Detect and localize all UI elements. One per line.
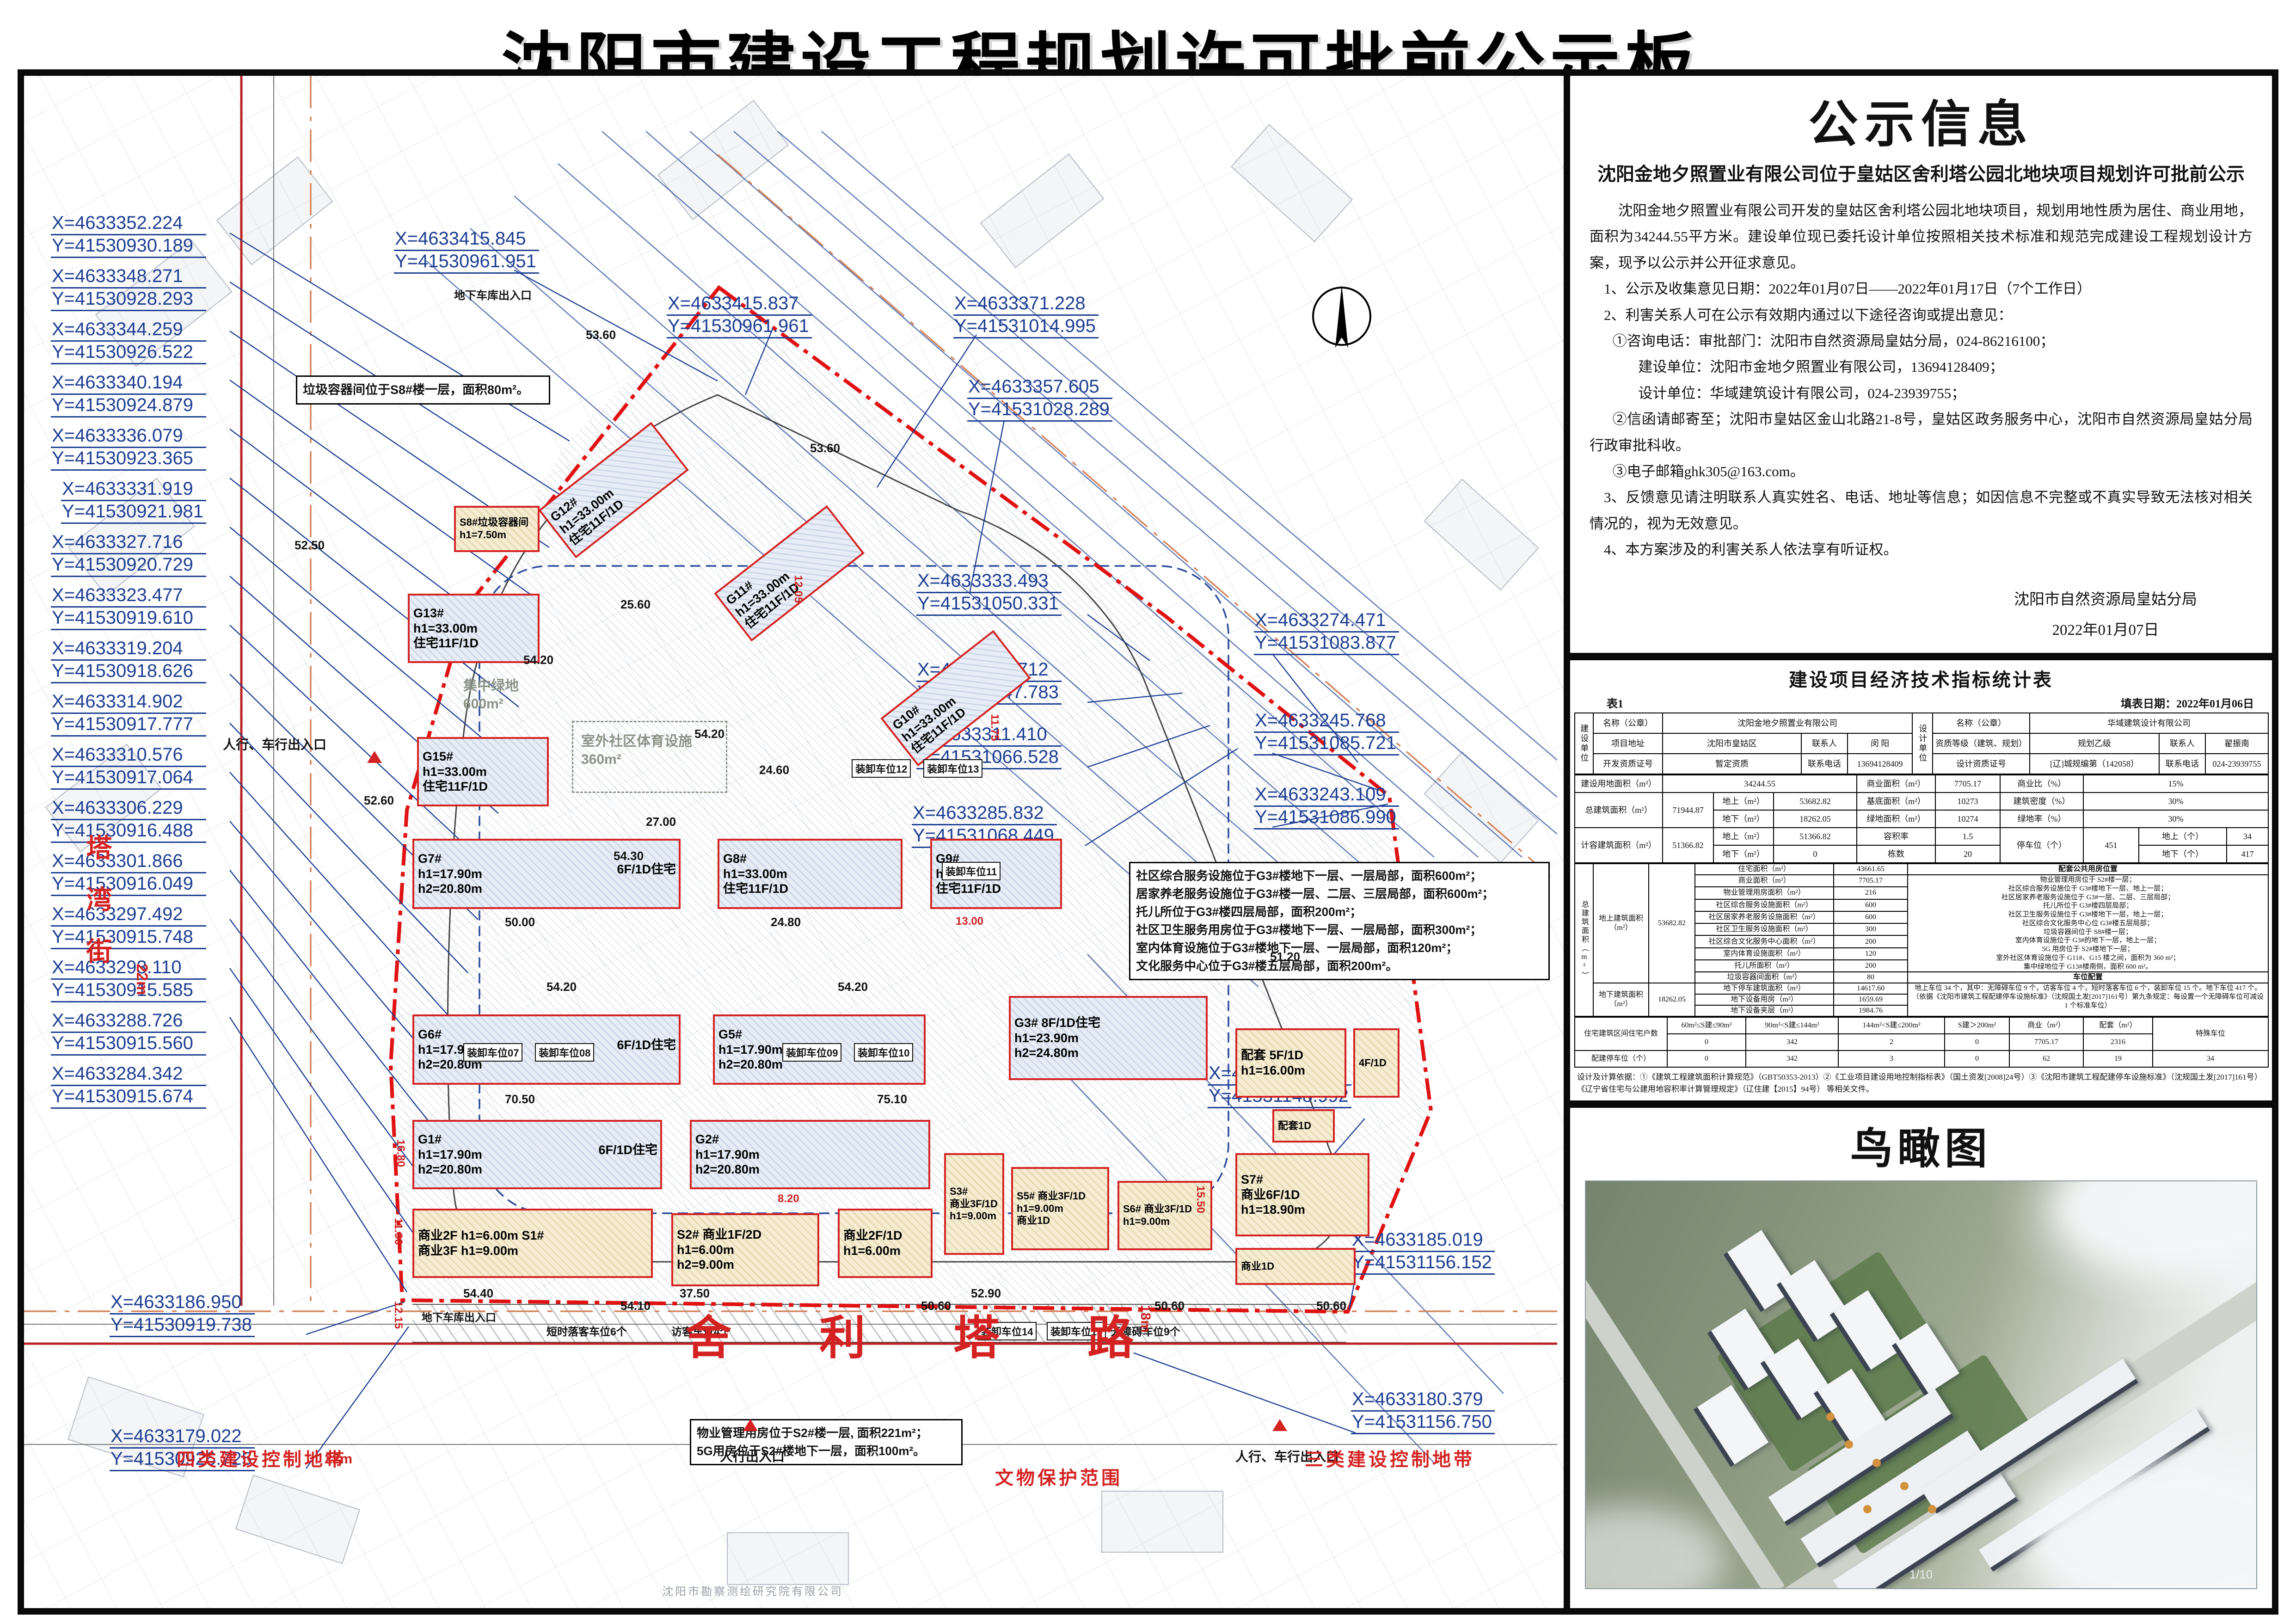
table-cell: 住宅面积（m²） <box>1695 864 1834 875</box>
render-cloud <box>2053 1180 2257 1274</box>
notice-paragraph: 3、反馈意见请注明联系人真实姓名、电话、地址等信息；如因信息不完整或不真实导致无… <box>1590 485 2253 537</box>
notice-paragraph: 沈阳金地夕照置业有限公司开发的皇姑区舍利塔公园北地块项目，规划用地性质为居住、商… <box>1590 198 2253 276</box>
table-cell: 资质等级（建筑、规划） <box>1933 733 2030 754</box>
coordinate-label: X=4633333.493Y=41531050.331 <box>916 571 1062 616</box>
table-cell: 342 <box>1746 1034 1838 1051</box>
coordinate-label: X=4633185.019Y=41531156.152 <box>1351 1229 1495 1275</box>
building-s5: S5# 商业3F/1Dh1=9.00m商业1D <box>1011 1167 1109 1250</box>
table-cell: 住宅建筑区间住宅户数 <box>1575 1017 1667 1051</box>
coordinate-label: X=4633357.605Y=41531028.289 <box>967 376 1112 422</box>
notice-paragraph: ③电子邮箱ghk305@163.com。 <box>1590 459 2253 485</box>
table-cell: 1.5 <box>1935 828 2000 845</box>
render-watermark: 1/10 <box>1909 1567 1933 1582</box>
garage-entrance-label: 地下车库出入口 <box>454 286 532 302</box>
table-cell: 暂定资质 <box>1663 754 1801 774</box>
dropoff-stall-label: 短时落客车位6个 <box>546 1323 627 1339</box>
table-cell: 200 <box>1834 960 1908 972</box>
unload-stall-label: 装卸车位10 <box>854 1043 913 1062</box>
table-cell: 社区卫生服务设施面积（m²） <box>1695 923 1834 935</box>
table-cell: S建＞200m² <box>1945 1017 2009 1034</box>
table-cell: 绿地率（%） <box>2000 810 2083 828</box>
spot-elevation: 52.50 <box>295 538 325 553</box>
entrance-label-south: 人行出入口 <box>720 1447 785 1465</box>
table-cell: 联系人 <box>2159 733 2205 754</box>
table-area-detail-block: 总建筑面积（m²） 地上建筑面积（m²） 53682.82 住宅面积（m²） 4… <box>1574 863 2269 1017</box>
coordinate-label: X=4633306.229Y=41530916.488 <box>51 798 206 843</box>
dimension-label: 16.80 <box>394 1139 407 1167</box>
dimension-label: 24.60 <box>759 763 789 777</box>
table-cell: 托儿所面积（m²） <box>1695 960 1834 972</box>
table-cell: 配套公共用房位置 <box>1908 864 2268 875</box>
spot-elevation: 54.20 <box>523 653 553 667</box>
building-s8-garbage: S8#垃圾容器间h1=7.50m <box>454 506 540 552</box>
surveyor-footnote: 沈阳市勘察测绘研究院有限公司 <box>662 1582 843 1598</box>
coordinate-label: X=4633331.919Y=41530921.981 <box>61 479 206 524</box>
notice-paragraph: 4、本方案涉及的利害关系人依法享有听证权。 <box>1590 537 2253 563</box>
table-cell: 15% <box>2083 775 2268 793</box>
notice-paragraph: 设计单位：华域建筑设计有限公司，024-23939755； <box>1590 381 2253 406</box>
dimension-label: 24.80 <box>771 915 801 929</box>
table-cell: 53682.82 <box>1774 793 1857 810</box>
table-cell: 34 <box>2153 1051 2268 1067</box>
spot-elevation: 53.60 <box>586 328 616 342</box>
table-cell: 7705.17 <box>1834 875 1908 887</box>
table-cell: 联系电话 <box>1801 754 1848 774</box>
table-cell: 144m²<S建≤200m² <box>1838 1017 1945 1034</box>
spot-elevation: 54.20 <box>694 727 724 741</box>
entrance-marker-icon <box>367 751 382 763</box>
table-cell: 基底面积（m²） <box>1857 793 1935 810</box>
table-cell: 配建停车位（个） <box>1575 1051 1667 1067</box>
table-cell: 30% <box>2083 810 2268 828</box>
table-cell: 项目地址 <box>1593 733 1663 754</box>
table-cell: 地上（m²） <box>1713 793 1774 810</box>
road-label-south: 舍利塔路 <box>685 1300 1222 1367</box>
table-cell: 建筑密度（%） <box>2000 793 2083 810</box>
table-cell: 19 <box>2083 1051 2153 1067</box>
table-cell: 216 <box>1834 887 1908 899</box>
dimension-label: 15.50 <box>1194 1186 1207 1213</box>
table-household-block: 住宅建筑区间住宅户数 60m²≤S建≤90m² 90m²<S建≤144m² 14… <box>1574 1017 2269 1068</box>
table-cell: 90m²<S建≤144m² <box>1746 1017 1838 1034</box>
signature-agency: 沈阳市自然资源局皇姑分局 <box>2014 584 2197 615</box>
table-cell: 华域建筑设计有限公司 <box>2030 713 2268 733</box>
coordinate-label: X=4633352.224Y=41530930.189 <box>51 213 206 258</box>
table-cell: 物业管理用房面积（m²） <box>1695 887 1834 899</box>
unload-stall-label: 装卸车位08 <box>535 1043 594 1062</box>
spot-elevation: 54.40 <box>463 1286 493 1301</box>
table-cell: 商业面积（m²） <box>1695 875 1834 887</box>
garage-entrance-label: 地下车库出入口 <box>422 1309 496 1324</box>
table-cell: 垃圾容器间面积（m²） <box>1695 972 1834 983</box>
table-cell: 联系人 <box>1801 733 1848 754</box>
render-cloud <box>1585 1505 1725 1589</box>
dimension-label: 11.90 <box>392 1218 405 1245</box>
unload-stall-label: 装卸车位13 <box>923 759 982 778</box>
table-cell: 地下（m²） <box>1713 845 1774 863</box>
spot-elevation: 50.60 <box>1316 1299 1346 1313</box>
indicator-table-section: 建设项目经济技术指标统计表 表1 填表日期：2022年01月06日 建设单位 名… <box>1570 660 2272 1100</box>
building-s1: 商业2F h1=6.00m S1#商业3F h1=9.00m <box>412 1209 653 1278</box>
zone-label: 三类建设控制地带 <box>1305 1444 1475 1471</box>
birdseye-section: 鸟瞰图 <box>1570 1114 2272 1615</box>
building-g8: G8#h1=33.00m住宅11F/1D <box>718 839 902 909</box>
table-cell: 43661.65 <box>1834 864 1908 875</box>
zone-label: 四类建设控制地带 <box>177 1444 347 1471</box>
coordinate-label: X=4633180.379Y=41531156.750 <box>1351 1389 1495 1434</box>
coordinate-label: X=4633327.716Y=41530920.729 <box>51 532 206 577</box>
table-cell: 13694128409 <box>1848 754 1912 774</box>
section-divider <box>1570 653 2272 660</box>
table-cell: 18262.05 <box>1649 983 1695 1016</box>
notice-paragraph: 1、公示及收集意见日期：2022年01月07日——2022年01月17日（7个工… <box>1590 276 2253 302</box>
table-footnote: 设计及计算依据：①《建筑工程建筑面积计算规范》（GBT50353-2013）②《… <box>1574 1071 2268 1095</box>
spot-elevation: 52.60 <box>364 793 394 808</box>
table-cell: 容积率 <box>1857 828 1935 845</box>
table-cell: 室内体育设施面积（m²） <box>1695 948 1834 960</box>
road-label-west: 塔湾街 <box>79 834 116 989</box>
table-cell: 71944.87 <box>1663 793 1713 828</box>
building-support-1d: 配套1D <box>1272 1109 1335 1143</box>
zone-label: 文物保护范围 <box>995 1463 1123 1490</box>
coordinate-label: X=4633288.726Y=41530915.560 <box>51 1010 206 1056</box>
table-header-block: 建设单位 名称（公章） 沈阳金地夕照置业有限公司 设计单位 名称（公章） 华域建… <box>1574 713 2269 774</box>
table-cell: 计容建筑面积（m²） <box>1575 828 1663 863</box>
unload-stall-label: 装卸车位12 <box>852 759 911 778</box>
table-cell: 名称（公章） <box>1593 713 1663 733</box>
dimension-label: 70.50 <box>505 1092 535 1106</box>
table-cell: 0 <box>1667 1034 1746 1051</box>
table-cell: 联系电话 <box>2159 754 2205 774</box>
coordinate-label: X=4633314.902Y=41530917.777 <box>51 691 206 737</box>
table-cell: 规划乙级 <box>2030 733 2159 754</box>
note-box-garbage: 垃圾容器间位于S8#楼一层，面积80m²。 <box>296 375 550 405</box>
table-cell: 60m²≤S建≤90m² <box>1667 1017 1746 1034</box>
table-cell: 地上（m²） <box>1713 828 1774 845</box>
table-cell: 地上车位 34 个，其中：无障碍车位 9 个，访客车位 4 个，短时落客车位 6… <box>1908 983 2268 1016</box>
spot-elevation: 37.50 <box>680 1286 710 1301</box>
coordinate-label: X=4633340.194Y=41530924.879 <box>51 372 206 418</box>
spot-elevation: 54.30 <box>614 849 644 863</box>
coordinate-label: X=4633245.768Y=41531085.721 <box>1254 710 1399 756</box>
table-cell: 地下设备用房（m²） <box>1695 994 1834 1005</box>
table-cell: 地下（个） <box>2139 845 2227 863</box>
notice-board-page: 沈阳市建设工程规划许可批前公示板 <box>0 0 2296 1622</box>
building-g2: G2#h1=17.90mh2=20.80m <box>690 1120 930 1189</box>
building-s2: S2# 商业1F/2Dh1=6.00mh2=9.00m <box>671 1213 819 1286</box>
table-cell: 沈阳市皇姑区 <box>1663 733 1801 754</box>
table-cell: 7705.17 <box>1935 775 2000 793</box>
dimension-label: 75.10 <box>877 1092 907 1106</box>
coordinate-label: X=4633348.271Y=41530928.293 <box>51 266 206 311</box>
dimension-label: 11.75 <box>988 714 1001 741</box>
entrance-marker-icon <box>743 1419 758 1431</box>
table-fill-date: 填表日期：2022年01月06日 <box>2121 694 2254 711</box>
coordinate-label: X=4633284.342Y=41530915.674 <box>51 1063 206 1109</box>
table-title: 建设项目经济技术指标统计表 <box>1574 665 2268 692</box>
table-cell: 沈阳金地夕照置业有限公司 <box>1663 713 1912 733</box>
entrance-label-west: 人行、车行出入口 <box>223 735 326 753</box>
coordinate-label: X=4633371.228Y=41531014.995 <box>953 293 1099 338</box>
note-box-community-facilities: 社区综合服务设施位于G3#楼地下一层、一层局部，面积600m²；居家养老服务设施… <box>1129 862 1550 980</box>
coordinate-label: X=4633243.109Y=41531086.990 <box>1254 784 1399 829</box>
table-cell: 53682.82 <box>1649 864 1695 983</box>
table-cell: 总建筑面积（m²） <box>1575 864 1593 1016</box>
table-cell: 417 <box>2227 845 2268 863</box>
table-cell: [辽]城规编第（142058） <box>2030 754 2159 774</box>
table-cell: 配套（m²） <box>2083 1017 2153 1034</box>
table-cell: 栋数 <box>1857 845 1935 863</box>
table-cell: 80 <box>1834 972 1908 983</box>
table-cell: 社区综合文化服务中心面积（m²） <box>1695 935 1834 947</box>
table-cell: 地下（m²） <box>1713 810 1774 828</box>
table-cell: 闵 阳 <box>1848 733 1912 754</box>
building-shop-1d: 商业1D <box>1235 1248 1356 1285</box>
table-cell: 300 <box>1834 923 1908 935</box>
table-cell: 1659.69 <box>1834 994 1908 1005</box>
spot-elevation: 51.20 <box>1270 950 1300 964</box>
outdoor-sport-label: 室外社区体育设施360m² <box>581 732 692 768</box>
table-cell: 62 <box>2009 1051 2083 1067</box>
notice-heading: 公示信息 <box>1590 84 2253 156</box>
table-cell: 0 <box>1667 1051 1746 1067</box>
spot-elevation: 52.90 <box>971 1286 1001 1301</box>
dimension-label: 25.60 <box>620 597 651 612</box>
table-cell: 地上（个） <box>2139 828 2227 845</box>
notice-paragraph: 建设单位：沈阳市金地夕照置业有限公司，13694128409； <box>1590 354 2253 380</box>
table-cell: 14617.60 <box>1834 983 1908 994</box>
table-cell: 社区居家养老服务设施面积（m²） <box>1695 911 1834 923</box>
spot-elevation: 53.60 <box>810 441 840 455</box>
birdseye-render-image: 1/10 <box>1585 1180 2257 1589</box>
table-cell: 停车位（个） <box>2000 828 2083 863</box>
render-cloud <box>2025 1459 2257 1589</box>
building-shop-2f1d: 商业2F/1Dh1=6.00m <box>838 1209 933 1278</box>
coordinate-label: X=4633323.477Y=41530919.610 <box>51 585 206 630</box>
table-cell: 总建筑面积（m²） <box>1575 793 1663 828</box>
dimension-label: 50.00 <box>505 915 535 929</box>
unload-stall-label: 装卸车位07 <box>463 1043 522 1062</box>
table-cell: 20 <box>1935 845 2000 863</box>
unload-stall-label: 装卸车位09 <box>782 1043 841 1062</box>
table-cell: 200 <box>1834 935 1908 947</box>
site-plan: X=4633352.224Y=41530930.189 X=4633348.27… <box>24 76 1564 1608</box>
table-cell: 地上建筑面积（m²） <box>1593 864 1649 983</box>
spot-elevation: 54.10 <box>620 1299 651 1313</box>
coordinate-label: X=4633415.837Y=41530961.961 <box>667 293 812 338</box>
table-cell: 商业（m²） <box>2009 1017 2083 1034</box>
table-cell: 设计单位 <box>1912 713 1933 774</box>
table-cell: 翟振南 <box>2205 733 2268 754</box>
dimension-label: 8.20 <box>778 1192 799 1205</box>
building-g1: G1#h1=17.90mh2=20.80m6F/1D住宅 <box>412 1120 662 1189</box>
table-number: 表1 <box>1607 694 1623 711</box>
coordinate-label: X=4633344.259Y=41530926.522 <box>51 319 206 364</box>
table-cell: 10273 <box>1935 793 2000 810</box>
entrance-marker-icon <box>1272 1419 1287 1431</box>
notice-signature: 沈阳市自然资源局皇姑分局 2022年01月07日 <box>1590 584 2253 645</box>
table-meta: 表1 填表日期：2022年01月06日 <box>1574 694 2268 713</box>
table-cell: 商业比（%） <box>2000 775 2083 793</box>
building-g15: G15#h1=33.00m住宅11F/1D <box>417 737 549 806</box>
table-cell: 建设用地面积（m²） <box>1575 775 1663 793</box>
table-cell: 地下建筑面积（m²） <box>1593 983 1649 1016</box>
dimension-label: 13.00 <box>956 915 983 928</box>
coordinate-label: X=4633319.204Y=41530918.626 <box>51 638 206 683</box>
table-cell: 600 <box>1834 899 1908 911</box>
table-cell: 名称（公章） <box>1933 713 2030 733</box>
building-g3: G3# 8F/1D住宅h1=23.90mh2=24.80m <box>1009 996 1208 1080</box>
public-notice-section: 公示信息 沈阳金地夕照置业有限公司位于皇姑区舍利塔公园北地块项目规划许可批前公示… <box>1570 76 2272 653</box>
section-divider <box>1570 1100 2272 1108</box>
unload-stall-label: 装卸车位11 <box>942 862 1001 880</box>
dimension-label: 27.00 <box>646 815 676 829</box>
table-cell: 地下设备夹层（m²） <box>1695 1005 1834 1016</box>
table-cell: 600 <box>1834 911 1908 923</box>
coordinate-label: X=4633186.950Y=41530919.738 <box>110 1292 255 1337</box>
dimension-label: 12.05 <box>792 575 804 603</box>
notice-paragraph: 2、利害关系人可在公示有效期内通过以下途径咨询或提出意见： <box>1590 302 2253 328</box>
coordinate-label: X=4633336.079Y=41530923.365 <box>51 425 206 471</box>
table-cell: 社区综合服务设施面积（m²） <box>1695 899 1834 911</box>
table-cell: 342 <box>1746 1051 1838 1067</box>
table-cell: 特殊车位 <box>2153 1017 2268 1051</box>
table-cell: 024-23939755 <box>2205 754 2268 774</box>
table-cell: 3 <box>1838 1051 1945 1067</box>
building-s7: S7#商业6F/1Dh1=18.90m <box>1235 1153 1369 1236</box>
table-cell: 0 <box>1945 1034 2009 1051</box>
notice-paragraph: ①咨询电话：审批部门：沈阳市自然资源局皇姑分局，024-86216100； <box>1590 328 2253 354</box>
table-cell: 开发资质证号 <box>1593 754 1663 774</box>
green-space-label: 集中绿地600m² <box>463 677 519 713</box>
coordinate-label: X=4633297.492Y=41530915.748 <box>51 904 206 949</box>
table-cell: 设计资质证号 <box>1933 754 2030 774</box>
table-cell: 7705.17 <box>2009 1034 2083 1051</box>
coordinate-label: X=4633274.471Y=41531083.877 <box>1254 610 1399 655</box>
building-support-5f: 配套 5F/1Dh1=16.00m <box>1235 1028 1346 1098</box>
signature-date: 2022年01月07日 <box>2014 615 2197 645</box>
table-cell: 34 <box>2227 828 2268 845</box>
board-frame: X=4633352.224Y=41530930.189 X=4633348.27… <box>18 69 2278 1615</box>
table-cell: 建设单位 <box>1575 713 1593 774</box>
notice-subheading: 沈阳金地夕照置业有限公司位于皇姑区舍利塔公园北地块项目规划许可批前公示 <box>1590 159 2253 186</box>
table-cell: 车位配置 <box>1908 972 2268 983</box>
road-width-dim: 22m <box>133 964 151 995</box>
table-cell: 10274 <box>1935 810 2000 828</box>
building-g13: G13#h1=33.00m住宅11F/1D <box>408 594 540 663</box>
building-4f1d: 4F/1D <box>1353 1028 1400 1098</box>
birdseye-heading: 鸟瞰图 <box>1570 1114 2272 1176</box>
coordinate-label: X=4633415.845Y=41530961.951 <box>394 228 539 274</box>
table-cell: 2 <box>1838 1034 1945 1051</box>
table-cell: 51366.82 <box>1663 828 1713 863</box>
table-cell: 商业面积（m²） <box>1857 775 1935 793</box>
table-cell: 18262.05 <box>1774 810 1857 828</box>
coordinate-label: X=4633301.866Y=41530916.049 <box>51 851 206 896</box>
table-cell: 绿地面积（m²） <box>1857 810 1935 828</box>
table-cell: 30% <box>2083 793 2268 810</box>
dimension-label: 12.15 <box>392 1301 405 1329</box>
table-cell: 1984.76 <box>1834 1005 1908 1016</box>
table-cell: 451 <box>2083 828 2139 863</box>
table-cell: 0 <box>1774 845 1857 863</box>
building-s3: S3#商业3F/1Dh1=9.00m <box>944 1153 1004 1255</box>
table-cell: 34244.55 <box>1663 775 1857 793</box>
coordinate-label: X=4633293.110Y=41530915.585 <box>51 957 206 1002</box>
table-cell: 物业管理用房位于 S2#楼一层；社区综合服务设施位于 G3#楼地下一层、地上一层… <box>1908 875 2268 972</box>
spot-elevation: 54.20 <box>838 980 868 994</box>
table-cell: 0 <box>1945 1051 2009 1067</box>
table-cell: 51366.82 <box>1774 828 1857 845</box>
coordinate-label: X=4633310.576Y=41530917.064 <box>51 744 206 790</box>
table-metrics-block: 建设用地面积（m²） 34244.55 商业面积（m²） 7705.17 商业比… <box>1574 774 2269 863</box>
coordinate-list-west: X=4633352.224Y=41530930.189 X=4633348.27… <box>51 213 206 1109</box>
spot-elevation: 54.20 <box>546 980 577 994</box>
notice-paragraph: ②信函请邮寄至；沈阳市皇姑区金山北路21-8号，皇姑区政务服务中心，沈阳市自然资… <box>1590 406 2253 459</box>
table-cell: 2316 <box>2083 1034 2153 1051</box>
table-cell: 120 <box>1834 948 1908 960</box>
table-cell: 地下停车建筑面积（m²） <box>1695 983 1834 994</box>
info-panel: 公示信息 沈阳金地夕照置业有限公司位于皇姑区舍利塔公园北地块项目规划许可批前公示… <box>1564 76 2272 1608</box>
